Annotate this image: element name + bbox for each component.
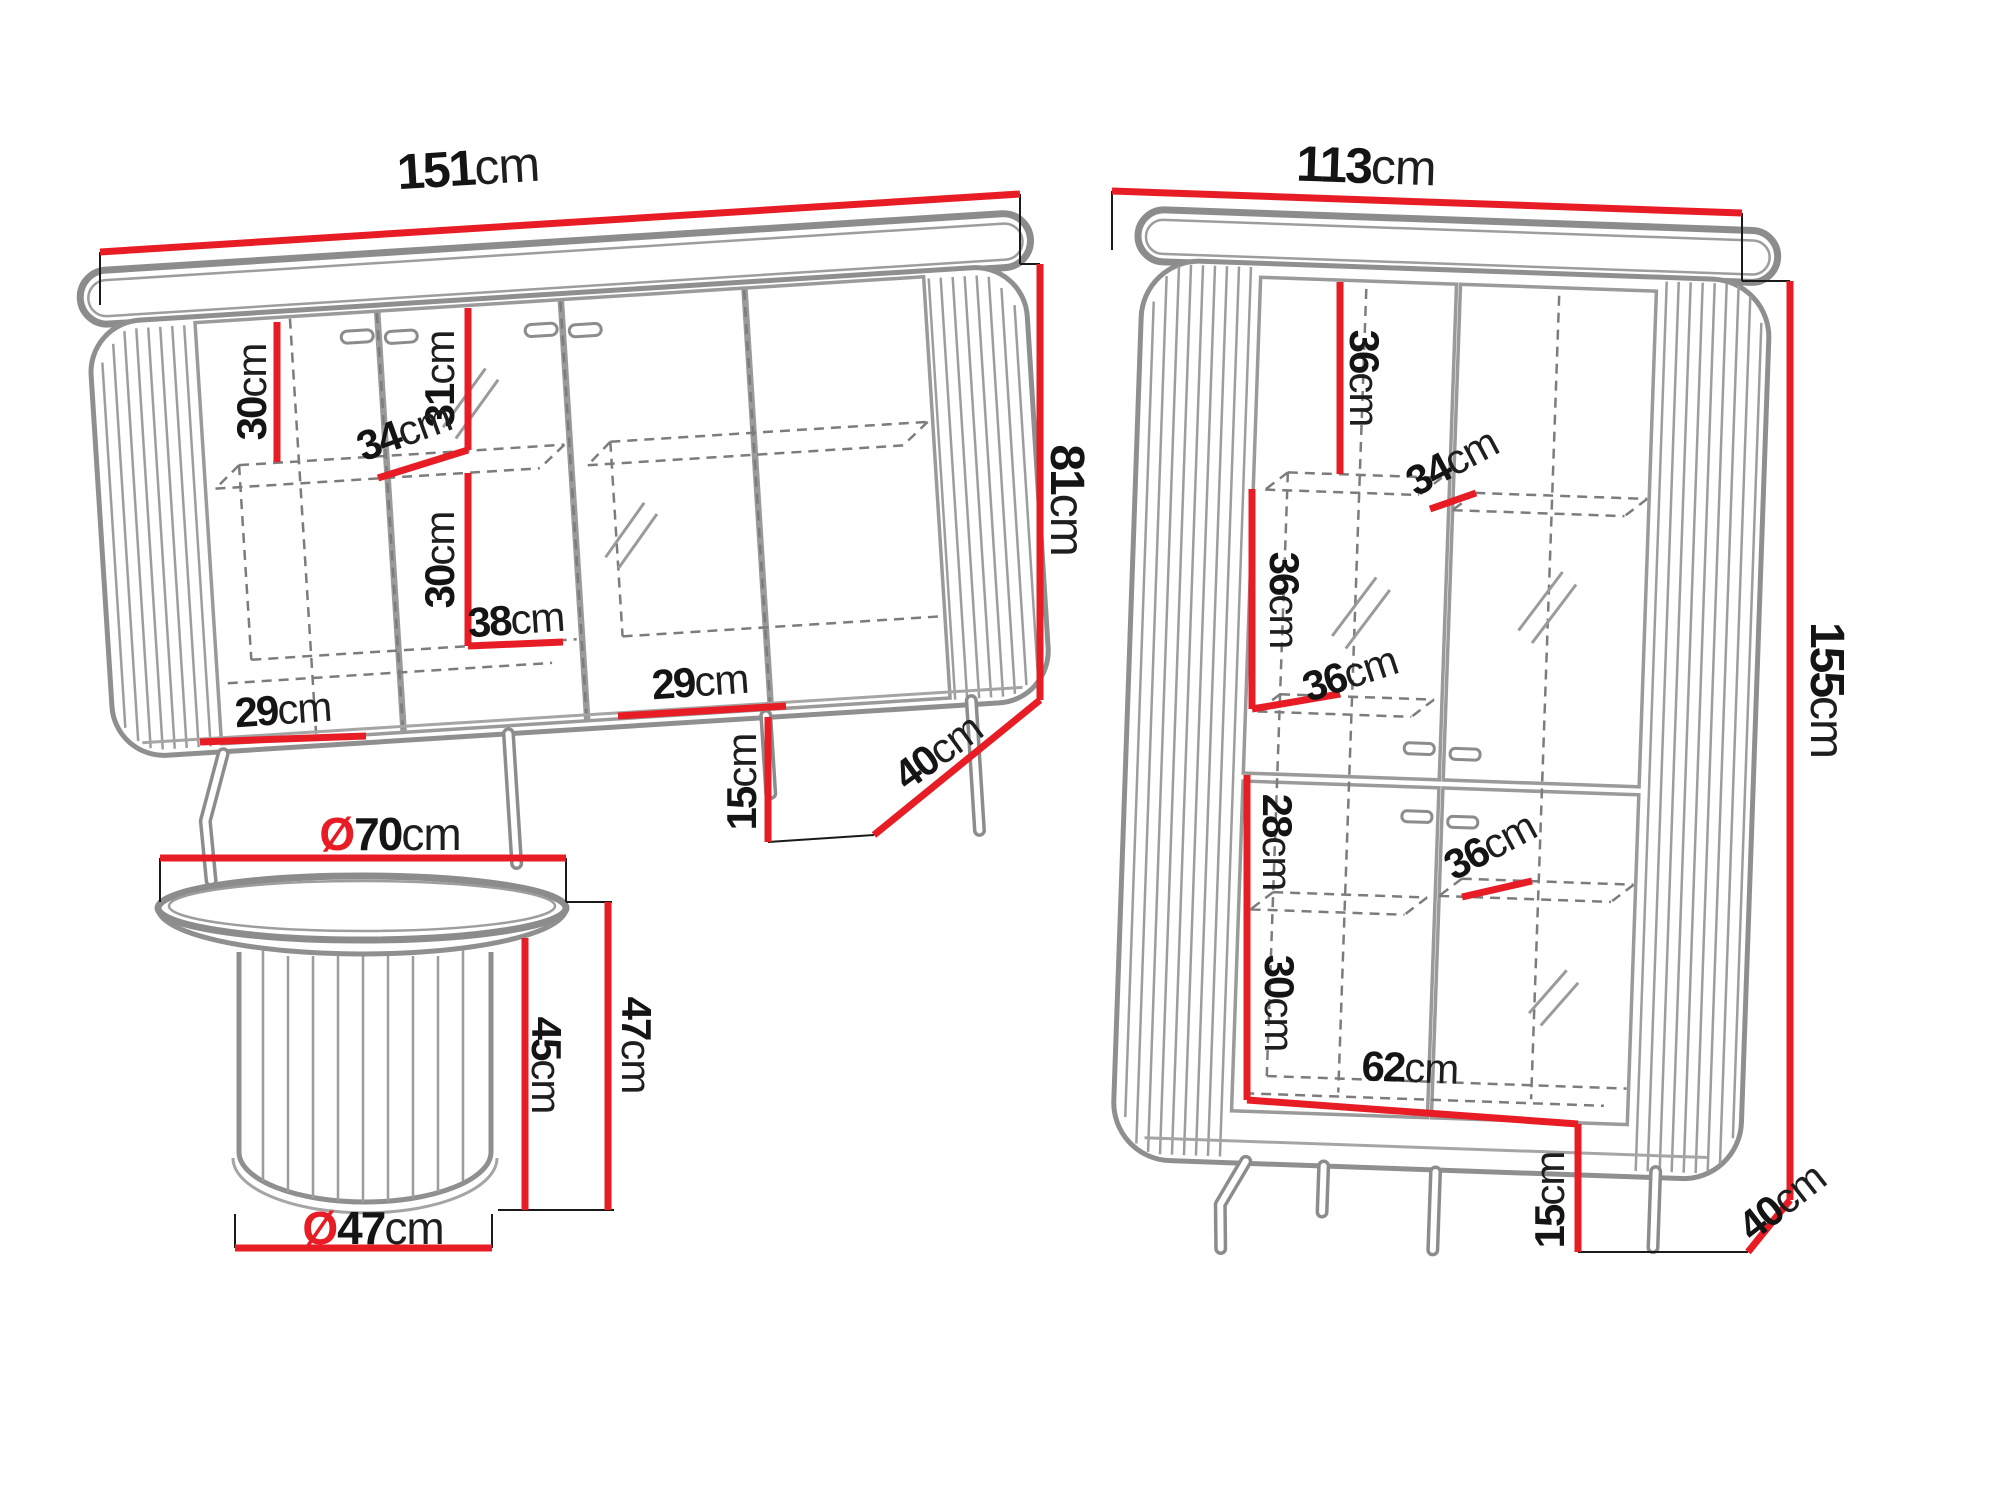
cabinet-leg bbox=[1653, 1172, 1656, 1248]
cabinet-leg bbox=[1433, 1172, 1436, 1250]
dim-sideboard-upper-shelf-height: 30cm bbox=[231, 344, 273, 441]
door-handle-icon bbox=[1450, 748, 1480, 760]
diagram-line-art bbox=[0, 0, 2000, 1500]
dim-table-base-diameter: Ø47cm bbox=[302, 1205, 443, 1251]
dim-cabinet-leg-height: 15cm bbox=[1529, 1152, 1571, 1249]
door-handle-icon bbox=[341, 329, 374, 343]
dim-sideboard-body-height: 81cm bbox=[1042, 444, 1090, 555]
dim-sideboard-leg-height: 15cm bbox=[721, 734, 763, 831]
dim-cabinet-bottom-compartment-height: 30cm bbox=[1258, 955, 1300, 1052]
dim-sideboard-right-compartment-width: 29cm bbox=[650, 658, 749, 707]
dim-table-top-diameter: Ø70cm bbox=[319, 811, 460, 857]
dim-sideboard-width: 151cm bbox=[396, 139, 541, 198]
display-cabinet-drawing bbox=[1103, 209, 1779, 1267]
dim-sideboard-inner-width: 38cm bbox=[466, 596, 565, 645]
door-handle-icon bbox=[1402, 811, 1432, 823]
table-base bbox=[239, 952, 491, 1202]
dim-cabinet-height: 155cm bbox=[1802, 622, 1850, 758]
dim-cabinet-middle-shelf-height: 36cm bbox=[1263, 552, 1305, 649]
door-handle-icon bbox=[1404, 743, 1434, 755]
door-handle-icon bbox=[385, 330, 418, 344]
sideboard-door-2 bbox=[379, 300, 586, 733]
furniture-dimension-diagram: 151cm 30cm 31cm 34cm 30cm 38cm 29cm 29cm… bbox=[0, 0, 2000, 1500]
cabinet-leg bbox=[1322, 1166, 1324, 1212]
door-handle-icon bbox=[525, 323, 558, 337]
dim-table-total-height: 47cm bbox=[615, 997, 657, 1094]
dim-sideboard-left-compartment-width: 29cm bbox=[233, 686, 332, 735]
dim-sideboard-lower-shelf-height: 30cm bbox=[419, 512, 461, 609]
dim-cabinet-top-shelf-height: 36cm bbox=[1343, 330, 1385, 427]
sideboard-door-4 bbox=[746, 277, 950, 709]
door-handle-icon bbox=[569, 323, 602, 337]
dim-cabinet-inner-width: 62cm bbox=[1361, 1045, 1459, 1090]
diameter-symbol-icon: Ø bbox=[302, 1202, 337, 1254]
coffee-table-drawing bbox=[158, 876, 566, 1213]
dim-cabinet-width: 113cm bbox=[1296, 139, 1437, 194]
diameter-symbol-icon: Ø bbox=[319, 808, 354, 860]
dim-cabinet-lower-upper-compartment-height: 28cm bbox=[1256, 794, 1298, 891]
dim-table-base-height: 45cm bbox=[525, 1017, 567, 1114]
